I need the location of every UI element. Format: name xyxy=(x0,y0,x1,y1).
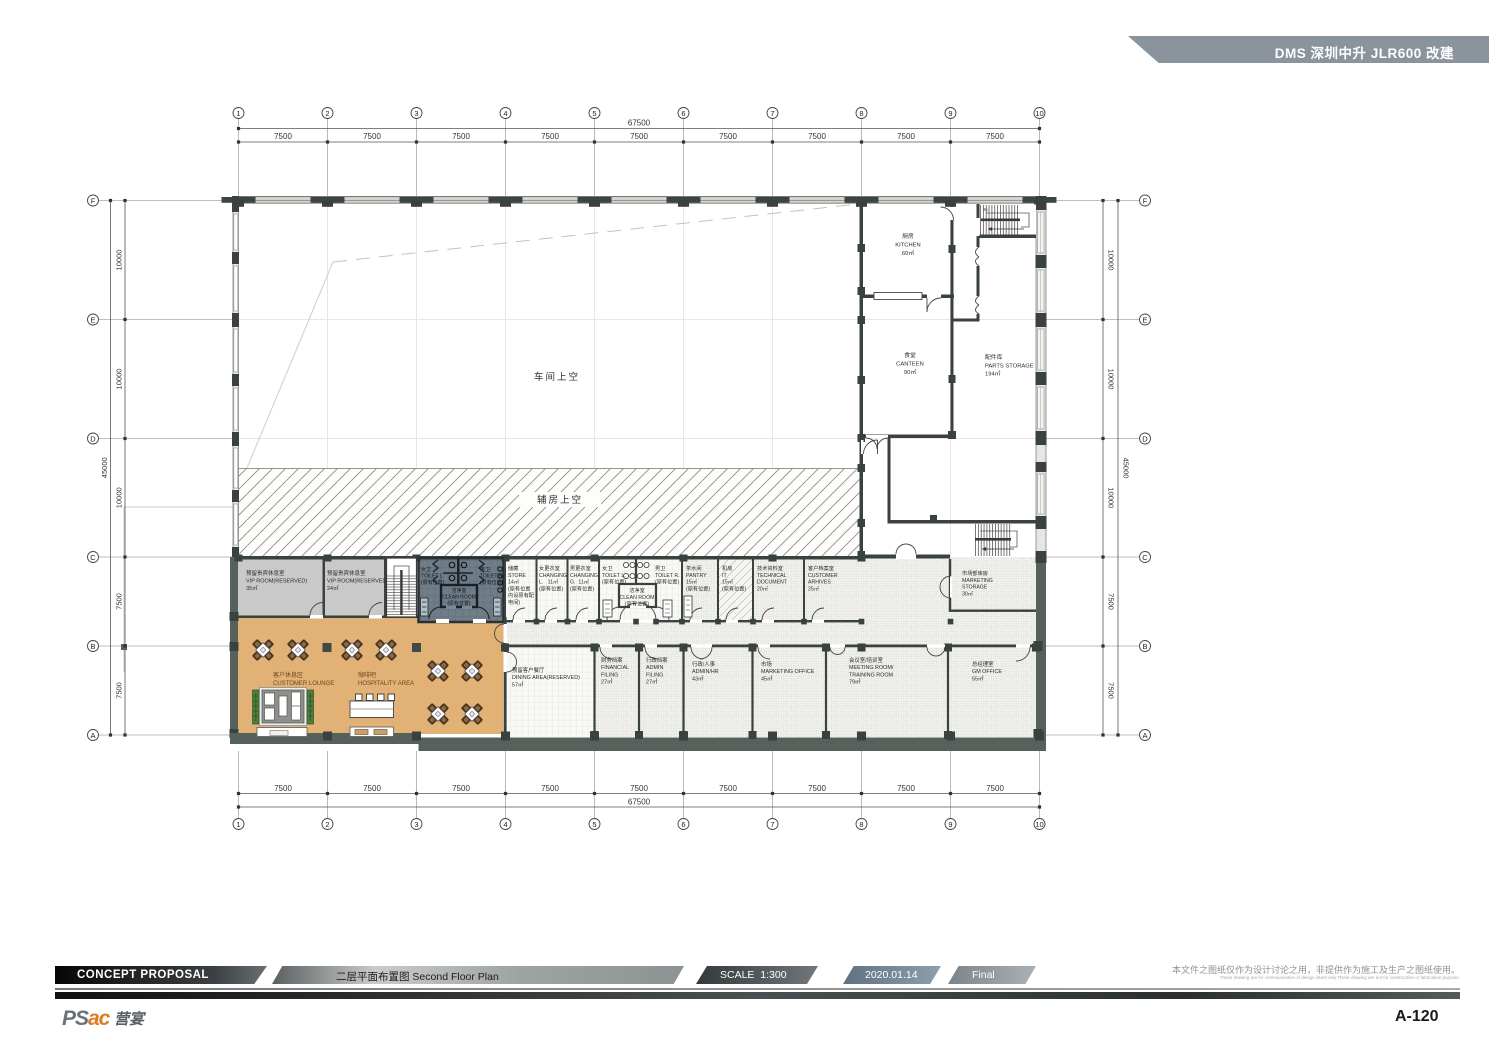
svg-text:B: B xyxy=(1142,642,1147,651)
svg-text:7500: 7500 xyxy=(808,132,826,141)
svg-text:6: 6 xyxy=(681,109,685,118)
svg-text:总经理室: 总经理室 xyxy=(972,660,994,668)
svg-text:MARKETING: MARKETING xyxy=(962,578,993,584)
svg-text:ADMIN: ADMIN xyxy=(646,665,663,671)
svg-text:15㎡: 15㎡ xyxy=(722,578,734,586)
svg-text:(原有位置): (原有位置) xyxy=(602,578,626,586)
svg-text:7500: 7500 xyxy=(897,784,915,793)
svg-text:预留客户餐厅: 预留客户餐厅 xyxy=(512,666,545,674)
svg-text:CHANGING: CHANGING xyxy=(539,573,567,579)
svg-text:VIP ROOM(RESERVED): VIP ROOM(RESERVED) xyxy=(327,579,388,585)
svg-text:10: 10 xyxy=(1035,109,1043,118)
svg-text:CUSTOMER LOUNGE: CUSTOMER LOUNGE xyxy=(273,681,334,687)
svg-text:男卫: 男卫 xyxy=(480,567,490,573)
svg-text:市场: 市场 xyxy=(761,660,772,668)
svg-text:7500: 7500 xyxy=(541,132,559,141)
svg-text:194㎡: 194㎡ xyxy=(985,370,1001,378)
svg-text:7500: 7500 xyxy=(452,784,470,793)
svg-text:2: 2 xyxy=(325,820,329,829)
svg-text:(原有位置): (原有位置) xyxy=(686,584,710,592)
svg-text:厨房: 厨房 xyxy=(902,232,914,240)
svg-text:女卫: 女卫 xyxy=(602,564,612,572)
svg-text:男更衣室: 男更衣室 xyxy=(570,564,591,572)
svg-text:PANTRY: PANTRY xyxy=(686,573,707,579)
svg-text:技术资料室: 技术资料室 xyxy=(757,564,783,572)
svg-text:45㎡: 45㎡ xyxy=(761,674,773,682)
svg-text:VIP ROOM(RESERVED): VIP ROOM(RESERVED) xyxy=(246,579,307,585)
svg-text:6: 6 xyxy=(681,820,685,829)
svg-text:STORAGE: STORAGE xyxy=(962,585,988,591)
svg-text:CUSTOMER: CUSTOMER xyxy=(808,573,838,579)
svg-text:DINING AREA(RESERVED): DINING AREA(RESERVED) xyxy=(512,675,580,681)
svg-text:内设原有配: 内设原有配 xyxy=(508,591,535,599)
svg-text:食堂: 食堂 xyxy=(904,351,916,359)
svg-text:7500: 7500 xyxy=(719,132,737,141)
svg-text:7: 7 xyxy=(770,820,774,829)
svg-text:30㎡: 30㎡ xyxy=(962,589,974,597)
svg-text:(原有位置): (原有位置) xyxy=(480,579,504,586)
svg-text:女更衣室: 女更衣室 xyxy=(539,564,560,572)
svg-text:(原有位置): (原有位置) xyxy=(447,600,471,607)
svg-text:洁净室: 洁净室 xyxy=(451,587,466,594)
svg-text:男卫: 男卫 xyxy=(655,565,665,572)
svg-text:茶水间: 茶水间 xyxy=(686,564,702,572)
svg-text:行政档案: 行政档案 xyxy=(646,656,668,664)
svg-text:3s: 3s xyxy=(983,207,989,212)
svg-text:咖啡吧: 咖啡吧 xyxy=(358,671,376,679)
svg-text:55㎡: 55㎡ xyxy=(972,674,984,682)
svg-text:7500: 7500 xyxy=(541,784,559,793)
svg-text:电间): 电间) xyxy=(508,598,520,606)
svg-text:10000: 10000 xyxy=(115,487,124,508)
svg-text:A: A xyxy=(1142,731,1147,740)
svg-text:7500: 7500 xyxy=(630,784,648,793)
svg-text:(原有位置: (原有位置 xyxy=(508,584,530,592)
svg-text:TRAINING ROOM: TRAINING ROOM xyxy=(849,672,894,678)
svg-text:(原有位置): (原有位置) xyxy=(570,584,594,592)
svg-text:CANTEEN: CANTEEN xyxy=(896,362,924,368)
svg-text:PARTS STORAGE: PARTS STORAGE xyxy=(985,363,1034,369)
svg-text:DOCUMENT: DOCUMENT xyxy=(757,580,788,586)
svg-text:机房: 机房 xyxy=(722,564,732,572)
svg-text:4: 4 xyxy=(503,820,507,829)
svg-text:5: 5 xyxy=(592,820,596,829)
svg-text:(原有位置): (原有位置) xyxy=(539,584,563,592)
svg-text:67500: 67500 xyxy=(628,798,651,807)
svg-text:客户档案室: 客户档案室 xyxy=(808,564,834,572)
svg-text:(原有位置): (原有位置) xyxy=(421,579,445,586)
svg-text:60㎡: 60㎡ xyxy=(902,249,914,257)
svg-text:24㎡: 24㎡ xyxy=(327,584,339,592)
svg-text:F: F xyxy=(1143,197,1148,206)
svg-text:7500: 7500 xyxy=(1107,593,1116,610)
svg-text:9: 9 xyxy=(948,109,952,118)
svg-text:8: 8 xyxy=(859,820,863,829)
svg-text:10000: 10000 xyxy=(1107,369,1116,390)
svg-text:TOILET L.: TOILET L. xyxy=(602,573,626,579)
svg-text:TOILET R.: TOILET R. xyxy=(655,573,680,579)
svg-text:25㎡: 25㎡ xyxy=(808,584,820,592)
svg-text:45000: 45000 xyxy=(1122,458,1131,479)
svg-text:TOILET L.: TOILET L. xyxy=(421,574,444,580)
svg-text:STORE: STORE xyxy=(508,573,526,579)
svg-text:7500: 7500 xyxy=(719,784,737,793)
svg-text:F: F xyxy=(91,197,96,206)
svg-text:7: 7 xyxy=(770,109,774,118)
svg-text:配件库: 配件库 xyxy=(985,353,1003,361)
svg-text:7500: 7500 xyxy=(630,132,648,141)
svg-text:10000: 10000 xyxy=(1107,250,1116,271)
svg-text:GM OFFICE: GM OFFICE xyxy=(972,669,1002,675)
svg-text:7500: 7500 xyxy=(363,132,381,141)
svg-text:8: 8 xyxy=(859,109,863,118)
svg-text:7500: 7500 xyxy=(274,132,292,141)
svg-text:3: 3 xyxy=(414,820,418,829)
svg-text:预留贵宾休息室: 预留贵宾休息室 xyxy=(246,569,285,577)
svg-text:10: 10 xyxy=(1035,820,1043,829)
svg-text:15㎡: 15㎡ xyxy=(686,578,698,586)
svg-text:7500: 7500 xyxy=(115,593,124,610)
svg-text:14㎡: 14㎡ xyxy=(508,578,520,586)
svg-text:35㎡: 35㎡ xyxy=(246,584,258,592)
svg-text:(原有位置): (原有位置) xyxy=(655,578,679,586)
svg-text:D: D xyxy=(90,435,96,444)
svg-text:TOILET R.: TOILET R. xyxy=(480,574,504,580)
svg-text:储藏: 储藏 xyxy=(508,564,519,572)
svg-text:女卫: 女卫 xyxy=(421,566,431,573)
svg-text:预留贵宾休息室: 预留贵宾休息室 xyxy=(327,569,366,577)
svg-text:9: 9 xyxy=(948,820,952,829)
svg-text:ADMIN/HR: ADMIN/HR xyxy=(692,669,719,675)
svg-text:90㎡: 90㎡ xyxy=(904,368,916,376)
svg-text:TECHNICAL: TECHNICAL xyxy=(757,573,787,579)
svg-text:PS: PS xyxy=(62,1007,89,1030)
svg-text:7500: 7500 xyxy=(986,784,1004,793)
svg-text:27㎡: 27㎡ xyxy=(601,678,613,686)
svg-text:79㎡: 79㎡ xyxy=(849,678,861,686)
svg-text:10000: 10000 xyxy=(1107,487,1116,508)
svg-text:辅房上空: 辅房上空 xyxy=(537,494,583,506)
svg-text:FILING: FILING xyxy=(601,672,618,678)
svg-text:7500: 7500 xyxy=(115,682,124,699)
svg-text:会议室/培训室: 会议室/培训室 xyxy=(849,656,883,664)
svg-text:7500: 7500 xyxy=(363,784,381,793)
svg-text:C: C xyxy=(90,553,96,562)
svg-text:45000: 45000 xyxy=(100,457,109,478)
svg-text:ac: ac xyxy=(88,1007,111,1030)
svg-text:G. 11㎡: G. 11㎡ xyxy=(570,578,590,586)
svg-text:MEETING ROOM/: MEETING ROOM/ xyxy=(849,665,894,671)
svg-text:7500: 7500 xyxy=(274,784,292,793)
svg-text:CLEAN ROOM: CLEAN ROOM xyxy=(620,595,655,601)
svg-text:27㎡: 27㎡ xyxy=(646,678,658,686)
svg-text:行政/人事: 行政/人事 xyxy=(692,660,716,668)
svg-text:4: 4 xyxy=(503,109,507,118)
svg-text:FINANCIAL: FINANCIAL xyxy=(601,665,629,671)
svg-text:7500: 7500 xyxy=(897,132,915,141)
svg-text:FILING: FILING xyxy=(646,672,663,678)
svg-text:20㎡: 20㎡ xyxy=(757,584,769,592)
svg-text:5: 5 xyxy=(592,109,596,118)
svg-text:(原有位置): (原有位置) xyxy=(625,600,649,608)
svg-text:CHANGING: CHANGING xyxy=(570,573,598,579)
svg-text:客户休息区: 客户休息区 xyxy=(273,671,303,679)
svg-text:车间上空: 车间上空 xyxy=(534,371,580,383)
svg-text:43㎡: 43㎡ xyxy=(692,674,704,682)
svg-text:MARKETING OFFICE: MARKETING OFFICE xyxy=(761,669,815,675)
svg-text:D: D xyxy=(1142,435,1148,444)
svg-text:2: 2 xyxy=(325,109,329,118)
svg-text:CLEAN ROOM: CLEAN ROOM xyxy=(442,595,476,601)
svg-text:E: E xyxy=(1142,316,1147,325)
svg-text:L. 11㎡: L. 11㎡ xyxy=(539,578,559,586)
svg-text:7500: 7500 xyxy=(808,784,826,793)
svg-text:10000: 10000 xyxy=(115,369,124,390)
svg-text:1: 1 xyxy=(236,109,240,118)
svg-text:57㎡: 57㎡ xyxy=(512,680,524,688)
svg-text:E: E xyxy=(90,316,95,325)
svg-text:A: A xyxy=(90,731,95,740)
svg-text:7500: 7500 xyxy=(452,132,470,141)
svg-text:营宴: 营宴 xyxy=(114,1010,147,1028)
svg-text:洁净室: 洁净室 xyxy=(629,586,645,594)
svg-text:市场部库房: 市场部库房 xyxy=(962,569,988,577)
svg-text:3: 3 xyxy=(414,109,418,118)
svg-text:KITCHEN: KITCHEN xyxy=(895,243,920,249)
svg-text:67500: 67500 xyxy=(628,119,651,128)
svg-text:1: 1 xyxy=(236,820,240,829)
svg-text:财务档案: 财务档案 xyxy=(601,656,623,664)
svg-text:B: B xyxy=(90,642,95,651)
svg-text:7500: 7500 xyxy=(1107,682,1116,699)
svg-text:ARHIVES: ARHIVES xyxy=(808,580,831,586)
svg-text:7500: 7500 xyxy=(986,132,1004,141)
svg-text:HOSPITALITY AREA: HOSPITALITY AREA xyxy=(358,681,414,687)
svg-text:(原有位置): (原有位置) xyxy=(722,584,746,592)
svg-text:C: C xyxy=(1142,553,1148,562)
svg-text:10000: 10000 xyxy=(115,250,124,271)
